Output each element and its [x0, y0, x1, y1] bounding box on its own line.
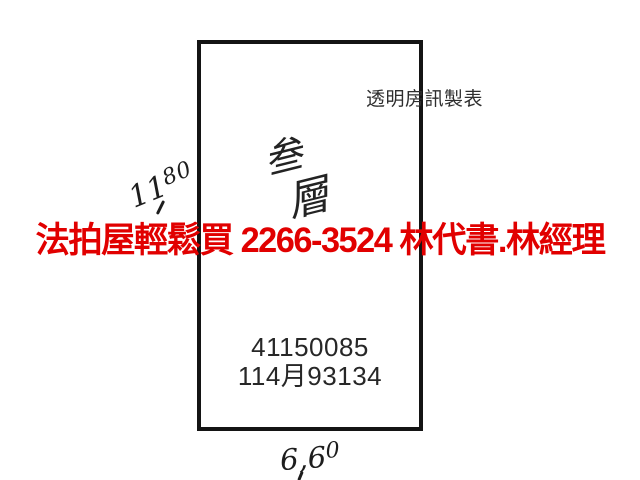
case-number-block: 41150085 114月93134: [199, 333, 421, 391]
ad-watermark: 法拍屋輕鬆買 2266-3524 林代書.林經理: [6, 212, 633, 263]
scanned-floor-sketch: 透明房訊製表 叁 層 1180 6,60 41150085 114月93134 …: [0, 0, 640, 480]
date-code: 114月93134: [199, 362, 421, 391]
bottom-dimension-superscript: 0: [325, 438, 342, 464]
case-number: 41150085: [199, 333, 421, 362]
bottom-dimension: 6,60: [279, 442, 342, 475]
maker-label: 透明房訊製表: [366, 84, 483, 111]
